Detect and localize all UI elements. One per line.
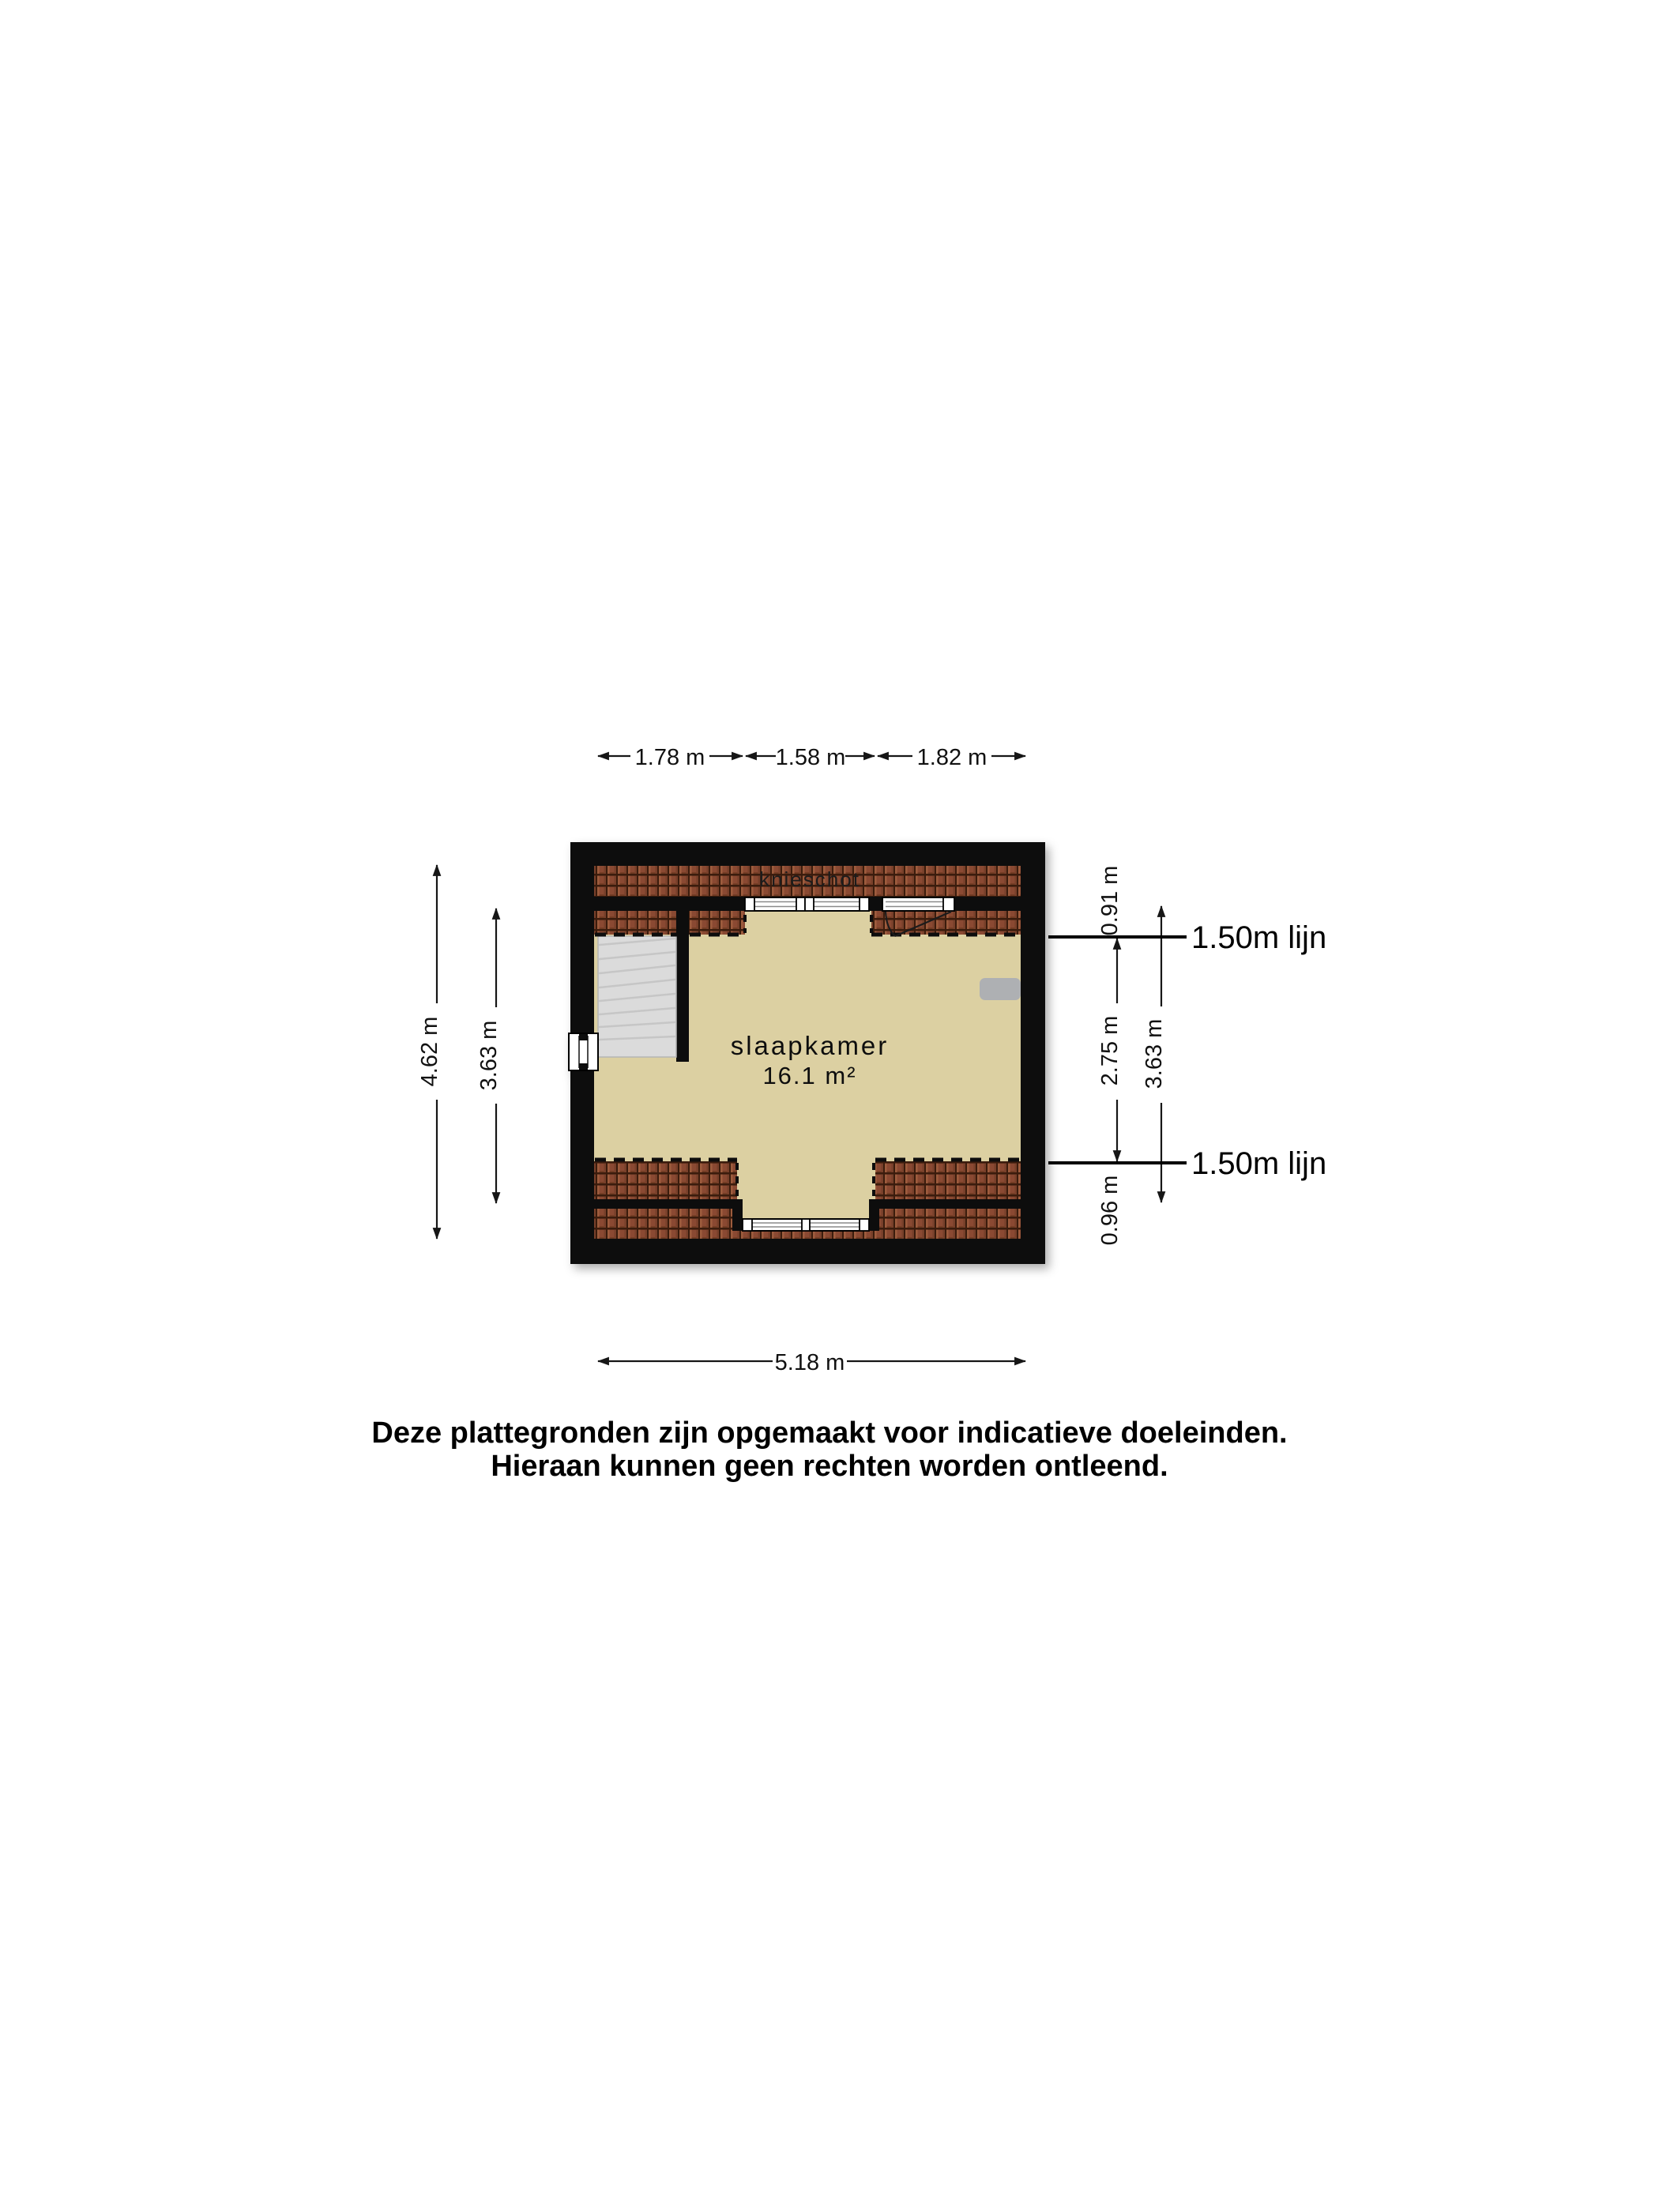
dim-top-1: 1.78 m (635, 745, 705, 770)
inner-wall-bottom-left (594, 1199, 743, 1209)
roof-tiles-bottom-left (594, 1161, 737, 1199)
knee-height-line-top-label: 1.50m lijn (1191, 920, 1326, 955)
dim-bottom-label: 5.18 m (775, 1350, 845, 1375)
staircase (598, 936, 676, 1057)
knee-height-line-top: 1.50m lijn (1048, 920, 1326, 955)
dimension-right-inner: 3.63 m (1142, 906, 1167, 1202)
radiator (980, 978, 1021, 1000)
knee-height-line-bottom-label: 1.50m lijn (1191, 1146, 1326, 1181)
roof-tiles-top-mid (689, 911, 745, 935)
dimension-top-chain: 1.78 m 1.58 m 1.82 m (598, 745, 1025, 770)
stair-wall (676, 897, 689, 1062)
dormer-jog-left (732, 1199, 743, 1231)
knee-height-line-bottom: 1.50m lijn (1048, 1146, 1326, 1181)
dimension-right-middle: 2.75 m (1097, 939, 1123, 1161)
top-window (745, 897, 869, 911)
dim-left-inner-label: 3.63 m (476, 1021, 502, 1091)
dim-top-2: 1.58 m (776, 745, 846, 770)
disclaimer-line-2: Hieraan kunnen geen rechten worden ontle… (491, 1450, 1168, 1483)
dimension-left-inner: 3.63 m (476, 908, 502, 1203)
roof-tiles-lower-right (869, 1209, 1021, 1239)
floorplan-page: knieschot slaapkamer 16.1 m² 1.78 m 1.58… (0, 0, 1659, 2212)
inner-wall-top-left (594, 897, 745, 911)
roof-tiles-top-left (594, 911, 676, 935)
inner-wall-bottom-right (869, 1199, 1021, 1209)
dim-top-3: 1.82 m (917, 745, 987, 770)
roof-tiles-lower-left (594, 1209, 743, 1239)
dim-right-inner-label: 3.63 m (1142, 1019, 1167, 1089)
dormer-window (743, 1219, 869, 1231)
dim-right-bottom-label: 0.96 m (1097, 1176, 1123, 1246)
dim-right-top-label: 0.91 m (1097, 866, 1123, 936)
dormer-jog-right (869, 1199, 879, 1231)
room-area-label: 16.1 m² (762, 1062, 856, 1089)
disclaimer-line-1: Deze plattegronden zijn opgemaakt voor i… (371, 1416, 1287, 1450)
knieschot-label: knieschot (759, 867, 860, 891)
dimension-bottom: 5.18 m (598, 1350, 1025, 1375)
dimension-left-outer: 4.62 m (417, 865, 442, 1239)
floorplan-drawing: knieschot slaapkamer 16.1 m² (569, 842, 1045, 1264)
roof-tiles-bottom-right (875, 1161, 1021, 1199)
side-window (569, 1033, 598, 1070)
dim-left-outer-label: 4.62 m (417, 1017, 442, 1087)
inner-wall-top-right (954, 897, 1021, 911)
room-name-label: slaapkamer (731, 1031, 890, 1060)
dim-right-middle-label: 2.75 m (1097, 1016, 1123, 1086)
